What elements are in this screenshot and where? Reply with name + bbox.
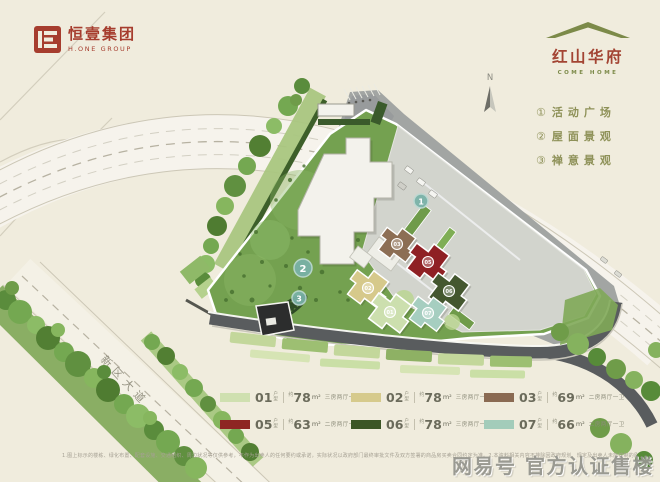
unit-id: 02: [386, 390, 403, 405]
developer-name-en: H.ONE GROUP: [68, 45, 136, 53]
legend-item-zen-garden: ③ 禅意景观: [536, 152, 616, 168]
unit-legend-row-01: 01 户型 约 78 m² 三房两厅一卫: [220, 389, 361, 405]
legend-label-3: 禅意景观: [552, 152, 616, 168]
badge-03: 03: [394, 242, 401, 248]
badge-01: 01: [387, 310, 394, 316]
divider: [414, 392, 415, 403]
unit-area-unit: m²: [312, 420, 321, 428]
developer-logo: 恒壹集团 H.ONE GROUP: [34, 26, 136, 53]
unit-area: 78: [424, 390, 441, 405]
compass-n-label: N: [487, 73, 493, 83]
divider: [283, 392, 284, 403]
unit-type-suffix: 户型: [404, 419, 410, 429]
unit-legend-row-07: 07 户型 约 66 m² 二房两厅一卫: [484, 416, 625, 432]
legend-item-roof-garden: ② 屋面景观: [536, 128, 616, 144]
unit-area: 63: [293, 417, 310, 432]
developer-logo-icon: [34, 26, 61, 53]
unit-id: 03: [519, 390, 536, 405]
unit-type-suffix: 户型: [273, 392, 279, 402]
swatch-06: [351, 420, 381, 429]
project-name-en: COME HOME: [534, 70, 642, 76]
legend-item-plaza: ① 活动广场: [536, 104, 616, 120]
swatch-01: [220, 393, 250, 402]
unit-area: 66: [557, 417, 574, 432]
swatch-07: [484, 420, 514, 429]
unit-legend-row-02: 02 户型 约 78 m² 三房两厅一卫: [351, 389, 492, 405]
unit-area-unit: m²: [443, 420, 452, 428]
unit-layout: 二房两厅一卫: [589, 420, 625, 428]
roof-icon: [544, 20, 632, 39]
unit-area: 78: [293, 390, 310, 405]
unit-id: 07: [519, 417, 536, 432]
unit-area: 69: [557, 390, 574, 405]
badge-05: 05: [425, 260, 432, 266]
badge-07: 07: [425, 311, 432, 317]
compass-needle-light: [490, 86, 496, 112]
unit-type-suffix: 户型: [537, 419, 543, 429]
watermark-text: 网易号 官方认证售楼处: [452, 450, 660, 482]
unit-area: 78: [424, 417, 441, 432]
basement-ramp: [256, 302, 294, 336]
site-plan-poster: 新区大道: [0, 0, 660, 482]
landscape-legend: ① 活动广场 ② 屋面景观 ③ 禅意景观: [536, 104, 616, 176]
legend-num-3: ③: [536, 154, 546, 167]
compass-needle-dark: [484, 86, 490, 112]
divider: [414, 419, 415, 430]
developer-name-cn: 恒壹集团: [68, 26, 136, 42]
project-logo: 红山华府 COME HOME: [534, 20, 642, 76]
unit-area-unit: m²: [443, 393, 452, 401]
marker-2: 2: [300, 264, 307, 275]
project-name-cn: 红山华府: [534, 45, 642, 67]
marker-3: 3: [296, 295, 302, 304]
swatch-02: [351, 393, 381, 402]
unit-type-suffix: 户型: [404, 392, 410, 402]
unit-layout: 二房两厅一卫: [589, 393, 625, 401]
legend-num-2: ②: [536, 130, 546, 143]
divider: [283, 419, 284, 430]
legend-num-1: ①: [536, 106, 546, 119]
swatch-03: [484, 393, 514, 402]
badge-06: 06: [446, 289, 453, 295]
swatch-05: [220, 420, 250, 429]
entrance-structures: [318, 101, 387, 125]
divider: [547, 392, 548, 403]
legend-label-1: 活动广场: [552, 104, 616, 120]
unit-area-unit: m²: [312, 393, 321, 401]
unit-id: 06: [386, 417, 403, 432]
unit-type-suffix: 户型: [273, 419, 279, 429]
unit-legend-row-03: 03 户型 约 69 m² 二房两厅一卫: [484, 389, 625, 405]
unit-type-suffix: 户型: [537, 392, 543, 402]
divider: [547, 419, 548, 430]
compass: N: [484, 73, 496, 112]
unit-legend-row-06: 06 户型 约 78 m² 三房两厅一卫: [351, 416, 492, 432]
unit-legend-row-05: 05 户型 约 63 m² 二房两厅一卫: [220, 416, 361, 432]
unit-area-unit: m²: [576, 420, 585, 428]
marker-1: 1: [418, 198, 424, 207]
unit-id: 05: [255, 417, 272, 432]
legend-label-2: 屋面景观: [552, 128, 616, 144]
badge-02: 02: [365, 286, 372, 292]
unit-area-unit: m²: [576, 393, 585, 401]
unit-id: 01: [255, 390, 272, 405]
